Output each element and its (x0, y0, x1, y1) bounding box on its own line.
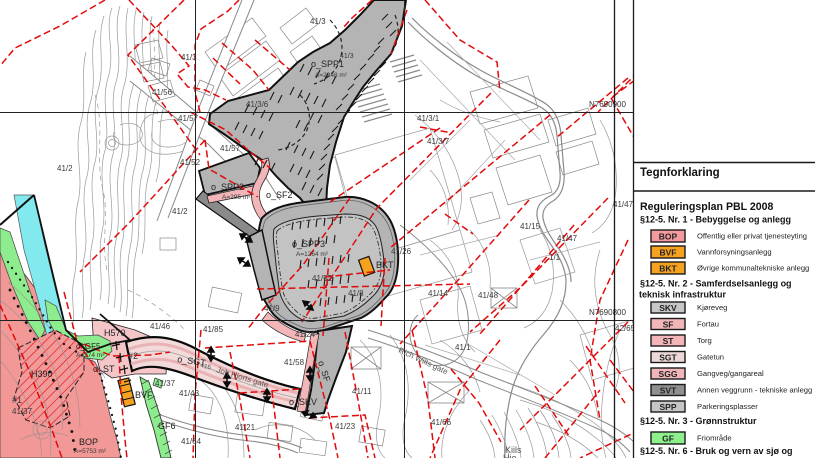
svg-text:41/37: 41/37 (155, 379, 176, 388)
svg-text:A=295 m²: A=295 m² (222, 194, 251, 201)
svg-text:BOP: BOP (659, 232, 678, 242)
svg-text:§12-5. Nr. 6 - Bruk og vern av: §12-5. Nr. 6 - Bruk og vern av sjø og (640, 446, 793, 456)
svg-text:41/57: 41/57 (178, 114, 199, 123)
svg-text:1/1: 1/1 (549, 253, 561, 262)
svg-text:ST: ST (663, 336, 675, 346)
svg-text:GF: GF (662, 434, 674, 444)
svg-text:o_SPP2: o_SPP2 (211, 182, 244, 192)
svg-text:41/15: 41/15 (520, 222, 541, 231)
svg-text:Øvrige kommunaltekniske anlegg: Øvrige kommunaltekniske anlegg (697, 264, 809, 273)
svg-text:41/46: 41/46 (150, 322, 171, 331)
svg-text:o_GF5: o_GF5 (76, 342, 101, 351)
svg-text:41/3: 41/3 (310, 17, 326, 26)
svg-text:SGG: SGG (659, 369, 678, 379)
svg-text:o_SKV: o_SKV (289, 397, 317, 407)
svg-text:41/3/7: 41/3/7 (427, 137, 450, 146)
svg-text:o_ST: o_ST (93, 364, 115, 374)
svg-text:41/56: 41/56 (152, 88, 173, 97)
svg-text:41/1: 41/1 (455, 343, 471, 352)
svg-text:GF6: GF6 (158, 421, 176, 431)
svg-text:SF: SF (663, 320, 674, 330)
svg-text:41/9: 41/9 (264, 304, 280, 313)
svg-text:Parkeringsplasser: Parkeringsplasser (697, 402, 758, 411)
svg-text:A=2848 m²: A=2848 m² (315, 72, 348, 79)
svg-text:N7690900: N7690900 (589, 100, 626, 109)
svg-text:teknisk infrastruktur: teknisk infrastruktur (639, 290, 727, 300)
svg-text:#1: #1 (12, 395, 22, 405)
svg-text:o_SPP3: o_SPP3 (292, 239, 325, 249)
svg-text:41/3: 41/3 (181, 53, 197, 62)
svg-text:41/2: 41/2 (172, 207, 188, 216)
svg-text:Offentlig eller privat tjenest: Offentlig eller privat tjenesteyting (697, 232, 807, 241)
svg-text:41/2: 41/2 (57, 164, 73, 173)
svg-text:41/58: 41/58 (284, 358, 305, 367)
svg-text:BVF: BVF (135, 390, 153, 400)
svg-text:Vannforsyningsanlegg: Vannforsyningsanlegg (697, 248, 772, 257)
svg-text:41/47: 41/47 (557, 234, 578, 243)
svg-text:Gangveg/gangareal: Gangveg/gangareal (697, 369, 764, 378)
svg-text:41/14: 41/14 (428, 289, 449, 298)
svg-text:41/26: 41/26 (391, 247, 412, 256)
svg-text:41/21: 41/21 (235, 423, 256, 432)
svg-text:§12-5. Nr. 2 - Samferdselsanle: §12-5. Nr. 2 - Samferdselsanlegg og (640, 279, 792, 289)
svg-text:Friområde: Friområde (697, 434, 732, 443)
svg-text:SVT: SVT (660, 386, 677, 396)
svg-text:Hjo: Hjo (503, 453, 517, 458)
svg-text:BKT: BKT (659, 264, 677, 274)
svg-text:42/65: 42/65 (615, 324, 636, 333)
svg-text:41/3/1: 41/3/1 (417, 114, 440, 123)
svg-text:Tegnforklaring: Tegnforklaring (640, 167, 720, 179)
svg-text:41/57: 41/57 (220, 144, 241, 153)
svg-text:A=1264 m²: A=1264 m² (296, 251, 329, 258)
svg-text:BVF: BVF (660, 248, 677, 258)
svg-text:o_SPP1: o_SPP1 (311, 59, 344, 69)
svg-text:#2: #2 (128, 351, 138, 361)
svg-text:41/52: 41/52 (312, 274, 333, 283)
svg-text:SKV: SKV (659, 303, 677, 313)
svg-text:o_SF2: o_SF2 (266, 190, 293, 200)
svg-text:41/85: 41/85 (203, 325, 224, 334)
svg-text:§12-5. Nr. 3 - Grønnstruktur: §12-5. Nr. 3 - Grønnstruktur (640, 416, 757, 426)
svg-text:41/64: 41/64 (181, 437, 202, 446)
svg-text:Gatetun: Gatetun (697, 353, 724, 362)
svg-text:SGT: SGT (659, 353, 677, 363)
svg-text:Annen veggrunn - tekniske anle: Annen veggrunn - tekniske anlegg (697, 386, 812, 395)
svg-text:41/3/6: 41/3/6 (246, 100, 269, 109)
svg-text:41/47: 41/47 (613, 200, 634, 209)
svg-text:§12-5. Nr. 1 - Bebyggelse og a: §12-5. Nr. 1 - Bebyggelse og anlegg (640, 215, 791, 225)
svg-text:N7690800: N7690800 (589, 308, 626, 317)
svg-text:41/23: 41/23 (335, 422, 356, 431)
svg-text:41/11: 41/11 (352, 387, 372, 396)
svg-text:A=5753 m²: A=5753 m² (74, 448, 107, 455)
svg-text:41/43: 41/43 (179, 389, 200, 398)
svg-text:Kjøreveg: Kjøreveg (697, 303, 727, 312)
svg-text:41/52: 41/52 (180, 158, 201, 167)
svg-text:H570: H570 (104, 328, 126, 338)
svg-text:BOP: BOP (79, 437, 98, 447)
svg-text:Torg: Torg (697, 336, 712, 345)
svg-text:41/24: 41/24 (295, 330, 316, 339)
svg-text:H390: H390 (31, 369, 53, 379)
svg-text:Reguleringsplan PBL 2008: Reguleringsplan PBL 2008 (640, 201, 774, 213)
svg-text:41/66: 41/66 (431, 418, 452, 427)
svg-text:41/8: 41/8 (348, 289, 364, 298)
svg-text:Fortau: Fortau (697, 320, 719, 329)
svg-text:41/37: 41/37 (12, 407, 33, 416)
svg-text:SPP: SPP (659, 402, 676, 412)
svg-text:BKT: BKT (376, 260, 394, 270)
svg-text:A=274 m²: A=274 m² (76, 352, 105, 359)
svg-text:41/48: 41/48 (478, 291, 499, 300)
